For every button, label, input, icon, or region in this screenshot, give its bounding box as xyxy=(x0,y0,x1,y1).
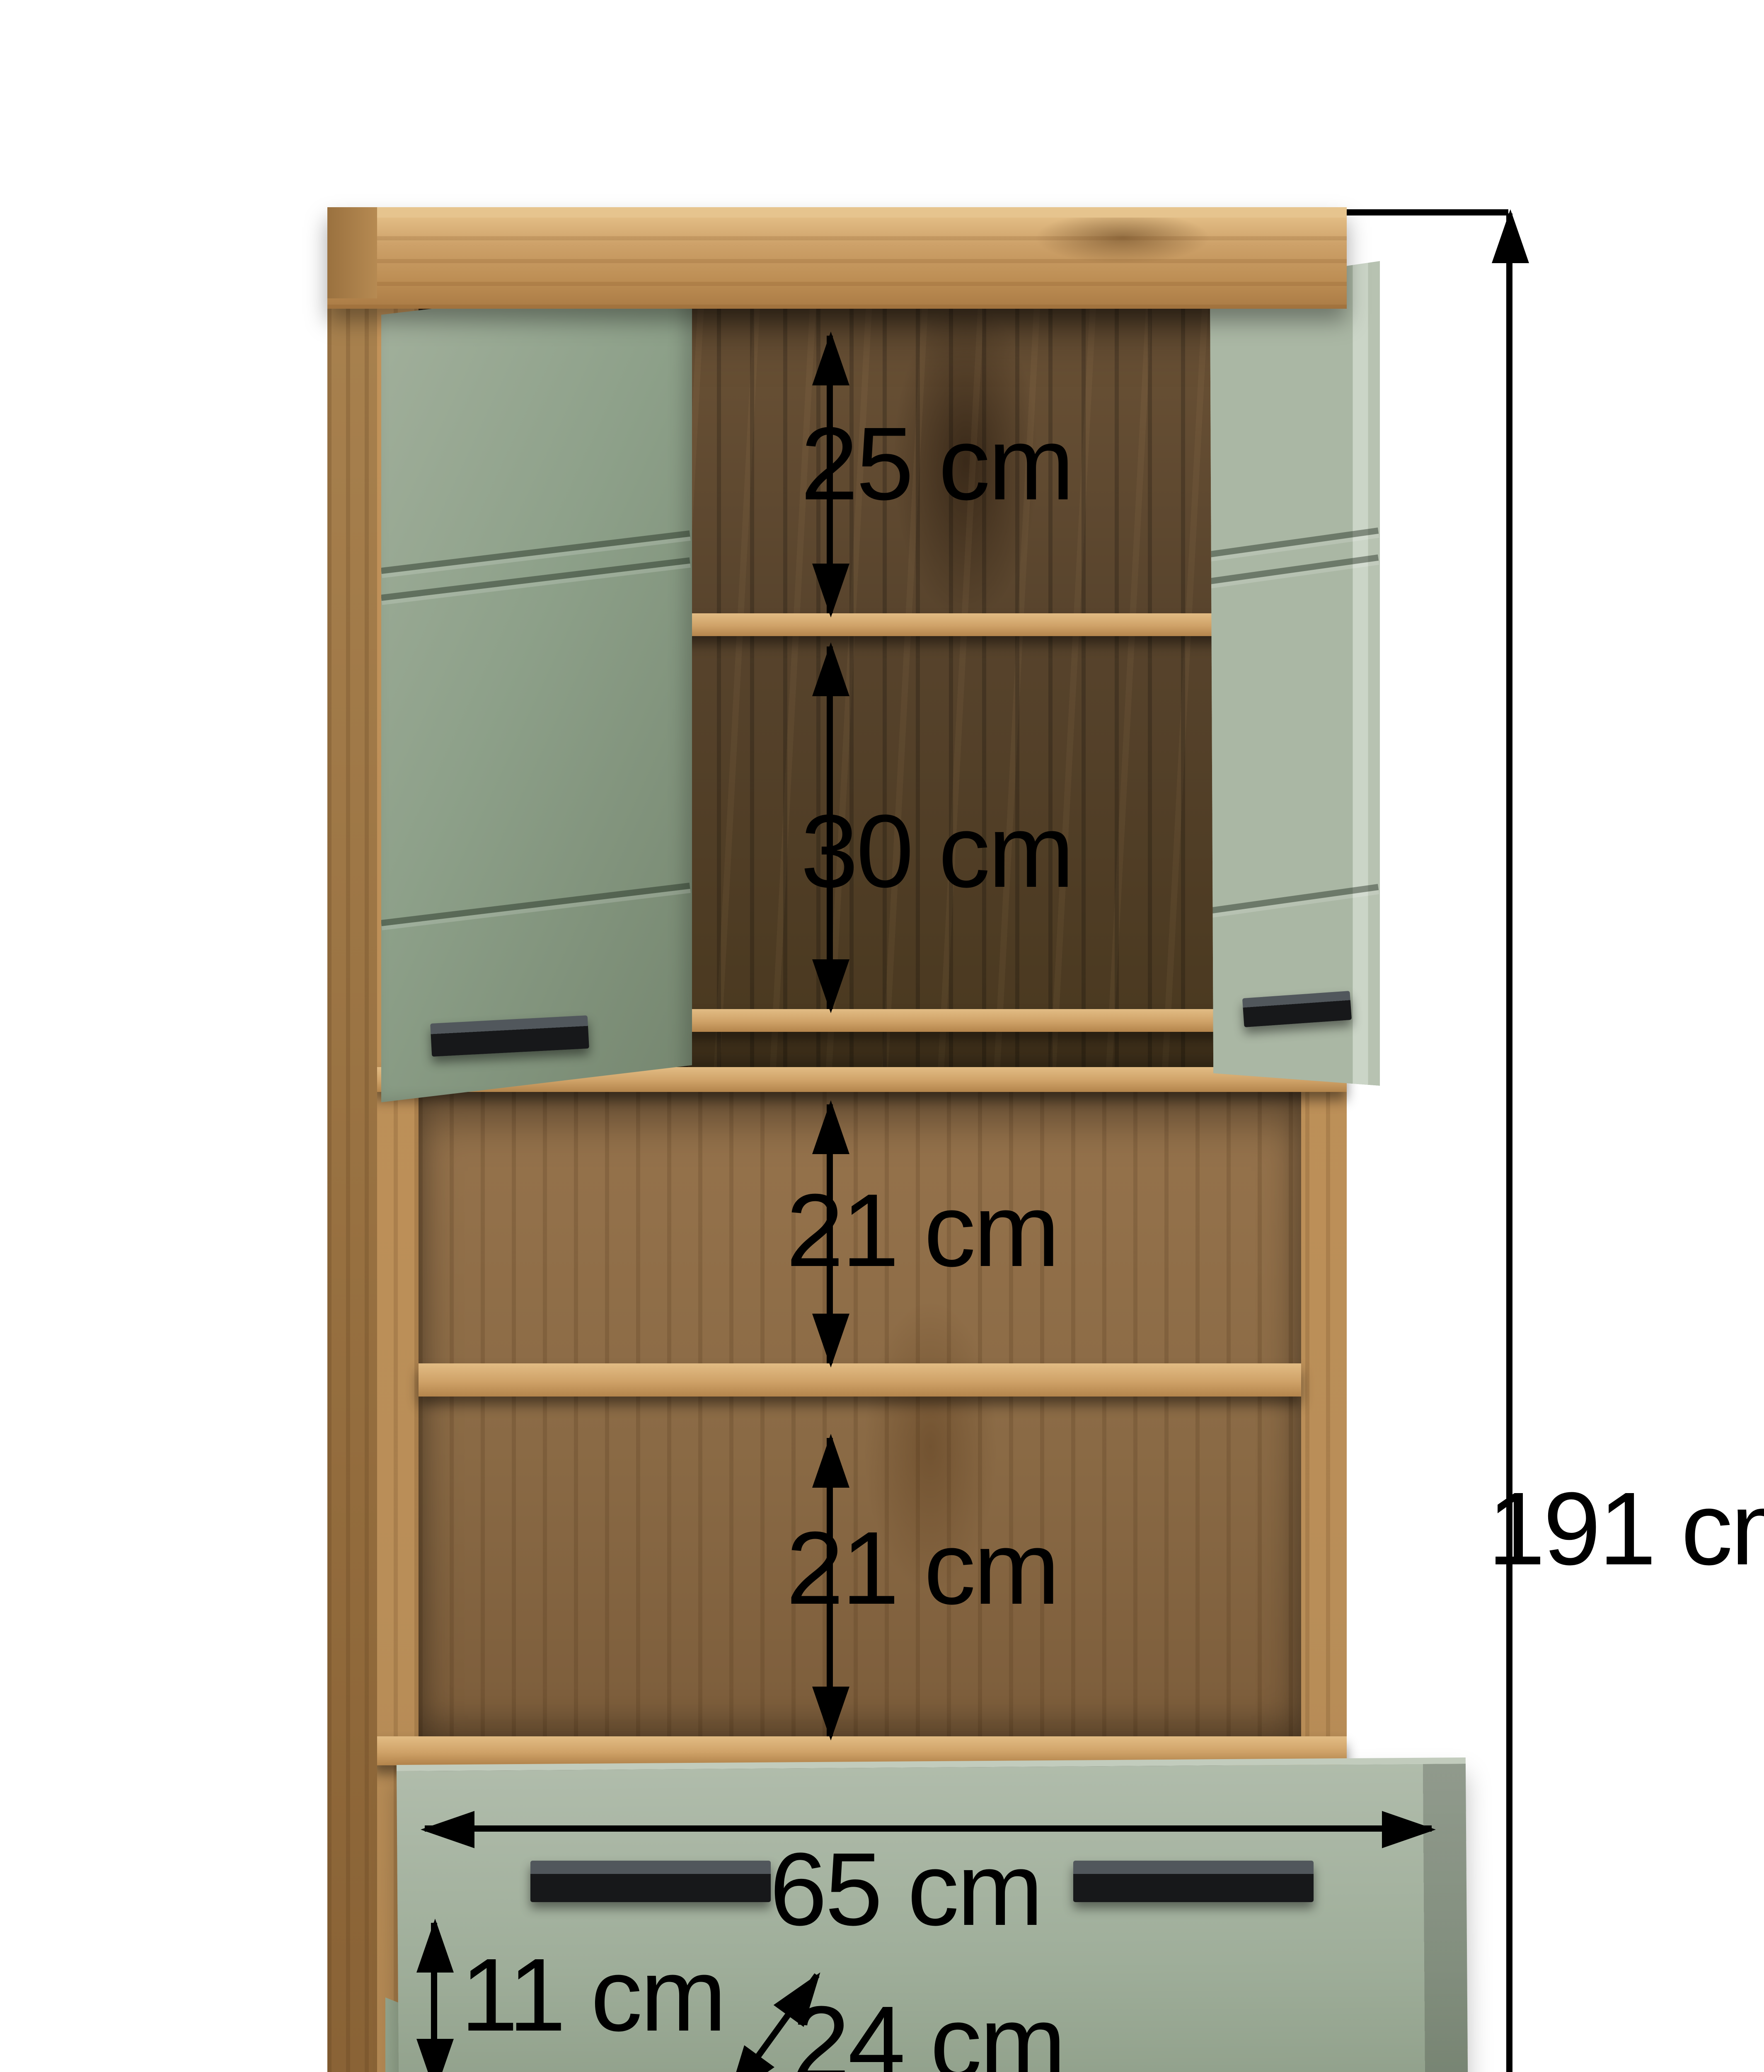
arrow-down-icon xyxy=(811,1314,849,1368)
drawer-handle-right xyxy=(1073,1861,1314,1902)
dimension-label-21cm-upper: 21 cm xyxy=(786,1179,1058,1283)
shelf-middle xyxy=(419,1363,1301,1397)
dimension-line-191cm xyxy=(1506,213,1512,2072)
arrow-down-icon xyxy=(811,1687,849,1740)
dimension-label-191cm: 191 cm xyxy=(1488,1477,1764,1581)
arrow-up-icon xyxy=(811,642,849,696)
arrow-up-icon xyxy=(811,1434,849,1488)
dimension-label-11cm: 11 cm xyxy=(460,1944,724,2047)
furniture-dimension-diagram: 25 cm 30 cm 21 cm 21 cm 65 cm 11 cm 24 c… xyxy=(0,0,1764,2072)
arrow-up-icon xyxy=(1491,209,1528,263)
dimension-line-11cm xyxy=(431,1923,437,2072)
arrow-down-icon xyxy=(811,959,849,1013)
arrow-down-icon xyxy=(811,564,849,617)
dimension-label-65cm: 65 cm xyxy=(769,1838,1041,1941)
door-top-left xyxy=(381,278,692,1102)
dimension-label-30cm: 30 cm xyxy=(801,800,1072,903)
extension-line-top xyxy=(1343,209,1508,215)
arrow-down-icon xyxy=(416,2039,453,2072)
door-groove xyxy=(1210,554,1379,584)
door-groove xyxy=(1210,528,1379,557)
dimension-label-25cm: 25 cm xyxy=(801,412,1072,516)
arrow-up-icon xyxy=(811,1100,849,1154)
top-cornice xyxy=(327,207,1347,309)
side-panel-left xyxy=(327,228,377,2072)
arrow-left-icon xyxy=(421,1810,474,1847)
dimension-label-24cm: 24 cm xyxy=(792,1991,1064,2072)
drawer-handle-left xyxy=(530,1861,771,1902)
door-groove xyxy=(381,883,690,926)
arrow-right-icon xyxy=(1382,1810,1436,1847)
door-groove xyxy=(1210,884,1379,914)
top-cornice-side-face xyxy=(327,207,377,298)
arrow-up-icon xyxy=(811,332,849,385)
dimension-line-65cm xyxy=(425,1825,1432,1832)
dimension-label-21cm-lower: 21 cm xyxy=(786,1517,1058,1620)
door-top-right xyxy=(1210,261,1380,1094)
arrow-up-icon xyxy=(416,1919,453,1973)
